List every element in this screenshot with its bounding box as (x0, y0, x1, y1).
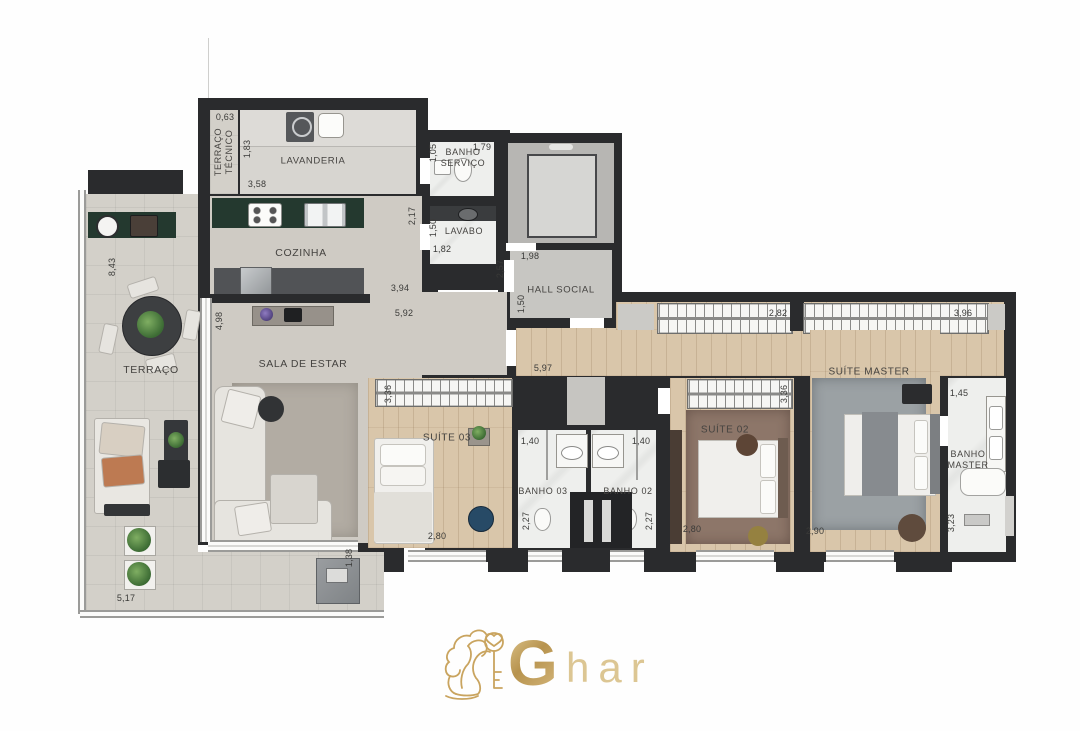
room-label-terraco-tecnico: TERRAÇO TÉCNICO (213, 110, 236, 194)
room-label-suite-master: SUÍTE MASTER (828, 367, 909, 378)
master-pillow (914, 420, 928, 454)
dim: 2,90 (806, 526, 824, 536)
dim: 1,05 (428, 144, 438, 162)
door-gap (570, 318, 604, 328)
planter-plant (127, 528, 151, 552)
dim: 0,63 (216, 112, 234, 122)
room-label-banho02: BANHO 02 (603, 486, 652, 496)
dim: 3,23 (946, 514, 956, 532)
shaft-slot (584, 500, 593, 542)
banho03-toilet (534, 508, 551, 531)
dim: 2,27 (521, 512, 531, 530)
window (696, 550, 774, 562)
room-label-cozinha: COZINHA (275, 247, 326, 259)
brand-logo: G har (440, 618, 680, 718)
room-label-suite02: SUÍTE 02 (701, 425, 749, 436)
dim: 2,80 (428, 531, 446, 541)
room-label-sala: SALA DE ESTAR (259, 358, 348, 370)
door-gap (658, 388, 670, 414)
sofa-cushion (234, 502, 272, 537)
suite02-headboard (778, 438, 788, 518)
wall (210, 294, 370, 303)
dim: 1,82 (433, 244, 451, 254)
kitchen-peninsula (214, 268, 364, 296)
suite02-pouf (748, 526, 768, 546)
shower-fixture (964, 514, 990, 526)
suite03-pouf (468, 506, 494, 532)
master-pillow (914, 456, 928, 490)
dim: 1,98 (521, 251, 539, 261)
dim: 1,40 (521, 436, 539, 446)
dim: 5,97 (534, 363, 552, 373)
dim: 3,96 (954, 308, 972, 318)
suite03-wardrobe (376, 380, 512, 406)
master-bed-throw (862, 412, 898, 496)
shaft-slot (602, 500, 611, 542)
dim: 4,98 (214, 312, 224, 330)
washing-machine-door (292, 117, 312, 137)
dim: 2,82 (769, 308, 787, 318)
banho02-sink (597, 446, 619, 460)
terraco-sofa-cushion (101, 454, 145, 488)
logo-letter-g: G (508, 626, 558, 700)
elevator-cab (527, 154, 597, 238)
planter-plant (127, 562, 151, 586)
floor-plan: TERRAÇO TÉCNICO LAVANDERIA BANHO SERVIÇO… (0, 0, 1080, 731)
suite02-side-wardrobe (670, 430, 682, 544)
room-label-banho03: BANHO 03 (518, 486, 567, 496)
dim: 1,38 (344, 549, 354, 567)
logo-text: har (566, 644, 654, 692)
banho03-shower-glass (546, 430, 548, 480)
window (610, 550, 644, 562)
suite02-wardrobe (688, 380, 792, 408)
console-plant (168, 432, 184, 448)
room-label-terraco: TERRAÇO (123, 364, 179, 376)
grill (130, 215, 158, 237)
corridor-stub (618, 304, 654, 330)
window (528, 550, 562, 562)
dim: 1,45 (950, 388, 968, 398)
suite02-pouf (736, 434, 758, 456)
suite03-pillows (380, 466, 426, 486)
island-cooktop (284, 308, 302, 322)
dim: 1,50 (428, 219, 438, 237)
room-label-lavabo: LAVABO (445, 226, 483, 236)
ottoman (270, 474, 318, 524)
dim: 1,40 (632, 436, 650, 446)
window (408, 550, 486, 562)
window (826, 550, 894, 562)
property-line (208, 38, 209, 100)
terraco-outer-wall (80, 610, 384, 618)
shaft (566, 376, 606, 426)
dim: 3,36 (383, 385, 393, 403)
room-label-hall-social: HALL SOCIAL (527, 285, 595, 296)
sala-floor-ext (415, 292, 507, 375)
bathtub (960, 468, 1006, 496)
room-label-lavanderia: LAVANDERIA (281, 156, 346, 167)
tv-console (902, 384, 932, 404)
column (488, 545, 528, 572)
terraco-sofa-base (104, 504, 150, 516)
side-table (258, 396, 284, 422)
gourmet-sink (96, 215, 119, 238)
door-gap (504, 260, 514, 292)
corridor-stub (988, 304, 1005, 330)
suite02-pillow (760, 480, 776, 514)
laundry-sink (318, 113, 344, 138)
dim: 2,80 (683, 524, 701, 534)
table-plant (137, 311, 164, 338)
dim: 3,58 (248, 179, 266, 189)
elevator-door (549, 144, 573, 150)
plumbing-shaft (570, 492, 632, 548)
sala-terraco-glass (200, 298, 212, 542)
suite02-pillow (760, 444, 776, 478)
suite03-plant (472, 426, 486, 440)
dim: 2,57 (495, 260, 505, 278)
room-label-suite03: SUÍTE 03 (423, 433, 471, 444)
dim: 3,94 (391, 283, 409, 293)
cooktop (248, 203, 282, 227)
room-label-banho-master: BANHO MASTER (942, 449, 994, 472)
kitchen-sink (304, 203, 346, 227)
dim: 1,79 (473, 142, 491, 152)
column (562, 545, 610, 572)
suite03-blanket (374, 492, 432, 542)
suite03-pillows (380, 444, 426, 466)
terraco-sofa-cushion (98, 422, 145, 458)
master-headboard (930, 414, 940, 494)
door-gap (506, 243, 536, 251)
dim: 3,36 (779, 385, 789, 403)
master-sink (989, 406, 1003, 430)
dim: 8,43 (107, 258, 117, 276)
terraco-outer-wall (78, 190, 86, 614)
wall (790, 302, 804, 331)
banho03-sink (561, 446, 583, 460)
dim: 2,27 (644, 512, 654, 530)
door-gap (506, 330, 516, 366)
lavabo-sink (458, 208, 478, 221)
master-pouf (898, 514, 926, 542)
dim: 5,92 (395, 308, 413, 318)
sala-window (208, 540, 358, 552)
desk-laptop (326, 568, 348, 583)
lion-key-icon (442, 626, 514, 702)
terraco-coffee-table (158, 460, 190, 488)
dim: 5,17 (117, 593, 135, 603)
dim: 2,17 (407, 207, 417, 225)
island-flowers (260, 308, 273, 321)
window-slot (1005, 496, 1014, 536)
dim: 1,83 (242, 140, 252, 158)
door-gap (940, 416, 948, 446)
dim: 1,50 (516, 295, 526, 313)
